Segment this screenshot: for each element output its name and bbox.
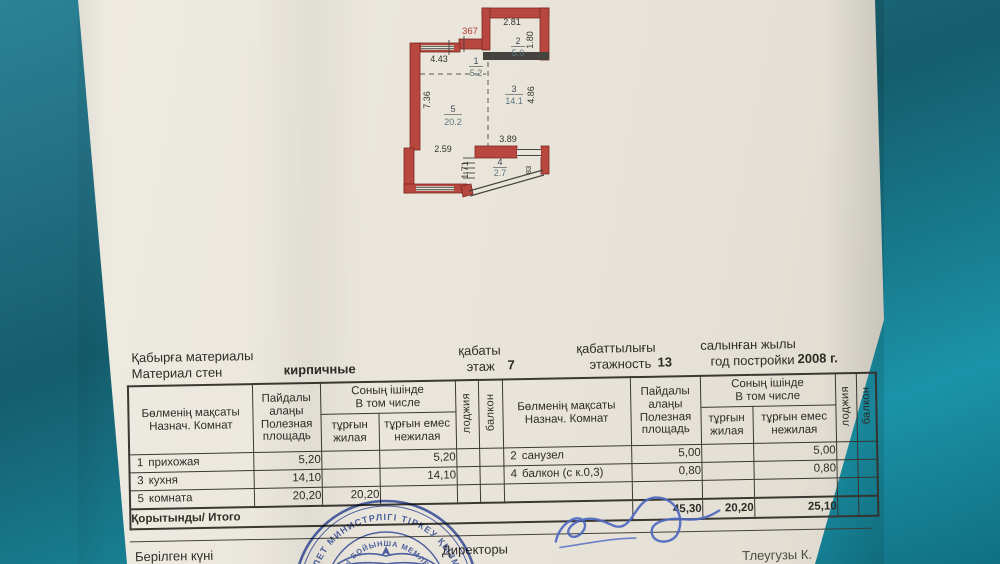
issued-date-label: Берілген күні [135,548,213,564]
floor-label-ru: этаж [466,359,494,375]
dim-room2-top: 2.81 [503,17,521,27]
plan-number: 367 [462,26,478,37]
photo-of-document: 367 2.81 1.80 4.43 7.36 4.86 2.59 1.71 3… [0,0,1000,564]
dim-bottom-left: 2.59 [434,144,452,154]
storeys-label-kk: қабаттылығы [576,340,656,356]
col-including-left: Соның ішіндеВ том числе [320,380,456,414]
total-nonliving: 25,10 [754,496,837,518]
col-balcony-right: балкон [856,373,877,442]
year-value: 2008 г. [797,350,838,366]
wall [482,8,490,50]
wall-material-value: кирпичные [284,361,356,377]
official-stamp: ӘДІЛЕТ МИНИСТРЛІГІ ТІРКЕУ ҚЫЗМЕТІ ҚАЛАСЫ… [288,496,484,564]
area-table: Бөлменің мақсатыНазнач. Комнат Пайдалы а… [127,372,880,531]
floor-plan: 367 2.81 1.80 4.43 7.36 4.86 2.59 1.71 3… [393,0,608,212]
signature [549,486,740,559]
col-useful-left: Пайдалы алаңыПолезная площадь [252,383,321,453]
dim-left-side: 7.36 [422,91,432,109]
dim-room1-top: 4.43 [430,54,448,64]
col-balcony-left: балкон [478,380,503,449]
dim-room2-right: 1.80 [525,31,535,49]
wall [475,146,517,158]
col-loggia-right: лоджия [835,373,857,442]
dim-balcony-left: 1.71 [460,161,470,179]
room-4-area: 2.7 [494,168,507,178]
col-useful-right: Пайдалы алаңыПолезная площадь [630,376,701,446]
signatory-name: Тлеугузы К. [742,547,812,563]
room-2-area: 5.0 [512,48,525,58]
col-room-left: Бөлменің мақсатыНазнач. Комнат [128,384,253,455]
year-label-kk: салынған жылы [700,336,796,353]
room-5-area: 20.2 [444,117,462,127]
room-5-number: 5 [450,104,455,114]
year-label-ru: год постройки [710,352,794,369]
wall-material-label-ru: Материал стен [132,365,223,382]
wall [410,43,420,150]
col-living-right: тұрғынжилая [700,406,753,444]
room-4-number: 4 [497,157,502,167]
storeys-label-ru: этажность [589,356,651,372]
col-including-right: Соның ішіндеВ том числе [700,373,836,407]
col-loggia-left: лоджия [455,380,479,449]
wall [459,39,482,49]
dim-balcony-top: 3.89 [499,134,517,144]
dim-balcony-right: 83 [524,166,533,174]
room-3-number: 3 [511,84,516,94]
room-1-area: 5.2 [470,68,483,78]
col-nonliving-right: тұрғын емеснежилая [752,405,836,444]
col-nonliving-left: тұрғын емеснежилая [378,412,456,450]
dim-right-side: 4.86 [526,86,536,104]
col-room-right: Бөлменің мақсатыНазнач. Комнат [502,377,631,448]
col-living-left: тұрғынжилая [320,413,379,451]
room-1-number: 1 [473,56,478,66]
floor-value: 7 [507,357,515,372]
room-3-area: 14.1 [505,96,523,106]
floor-label-kk: қабаты [458,343,501,359]
wall-material-label-kk: Қабырға материалы [131,348,253,365]
room-2-number: 2 [515,36,520,46]
storeys-value: 13 [657,354,672,369]
